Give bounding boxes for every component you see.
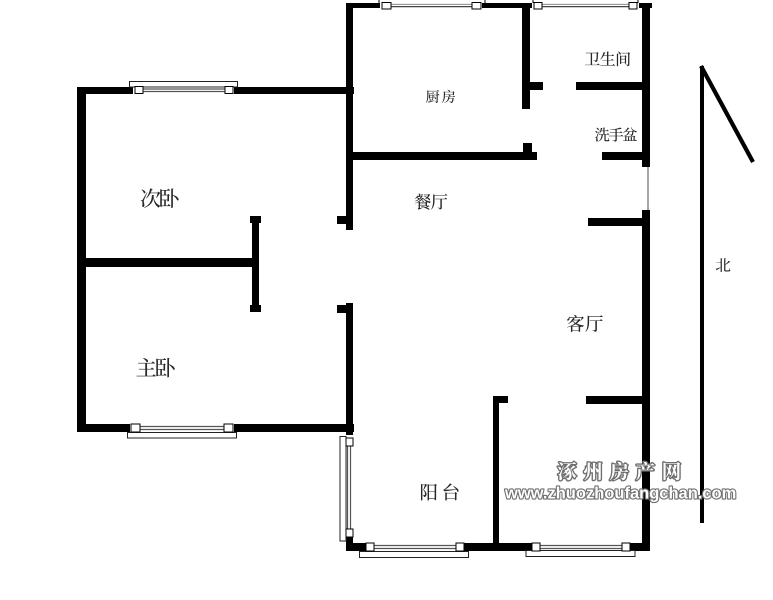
svg-text:www.zhuozhoufangchan.com: www.zhuozhoufangchan.com (504, 485, 736, 503)
